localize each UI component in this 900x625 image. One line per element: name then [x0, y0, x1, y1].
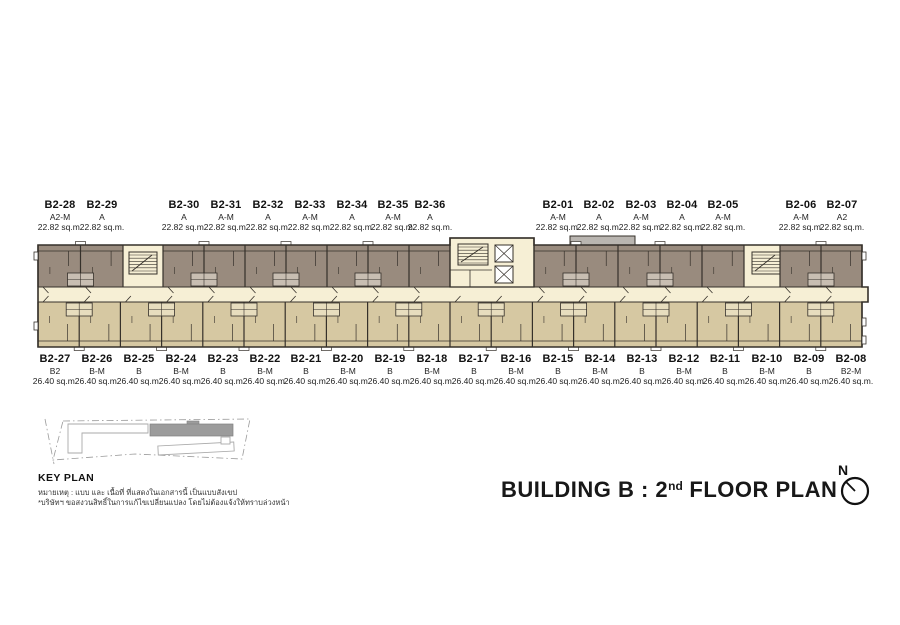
compass-needle: [846, 482, 855, 491]
unit-label-b2-14: B2-14B-M26.40 sq.m.: [578, 353, 622, 387]
unit-id: B2-22: [243, 353, 287, 366]
unit-type: B: [787, 367, 831, 377]
unit-id: B2-21: [284, 353, 328, 366]
north-compass: N: [830, 458, 880, 513]
unit-area: 26.40 sq.m.: [578, 377, 622, 387]
unit-id: B2-17: [452, 353, 496, 366]
unit-type: B: [452, 367, 496, 377]
unit-id: B2-14: [578, 353, 622, 366]
unit-type: B-M: [494, 367, 538, 377]
unit-area: 26.40 sq.m.: [326, 377, 370, 387]
unit-area: 26.40 sq.m.: [536, 377, 580, 387]
unit-type: B2-M: [829, 367, 873, 377]
unit-label-b2-22: B2-22B-M26.40 sq.m.: [243, 353, 287, 387]
unit-area: 26.40 sq.m.: [410, 377, 454, 387]
unit-id: B2-26: [75, 353, 119, 366]
unit-label-b2-25: B2-25B26.40 sq.m.: [117, 353, 161, 387]
unit-label-b2-17: B2-17B26.40 sq.m.: [452, 353, 496, 387]
key-plan-map: [38, 416, 273, 471]
unit-area: 26.40 sq.m.: [159, 377, 203, 387]
page-title: BUILDING B : 2nd FLOOR PLAN: [501, 477, 837, 503]
unit-area: 26.40 sq.m.: [787, 377, 831, 387]
unit-label-b2-18: B2-18B-M26.40 sq.m.: [410, 353, 454, 387]
unit-area: 26.40 sq.m.: [703, 377, 747, 387]
unit-type: B: [117, 367, 161, 377]
unit-area: 26.40 sq.m.: [494, 377, 538, 387]
unit-label-b2-16: B2-16B-M26.40 sq.m.: [494, 353, 538, 387]
unit-id: B2-24: [159, 353, 203, 366]
unit-id: B2-13: [620, 353, 664, 366]
unit-area: 26.40 sq.m.: [452, 377, 496, 387]
keyplan-note-2: *บริษัทฯ ขอสงวนสิทธิ์ในการแก้ไขเปลี่ยนแป…: [38, 497, 290, 509]
unit-type: B: [284, 367, 328, 377]
unit-label-b2-26: B2-26B-M26.40 sq.m.: [75, 353, 119, 387]
unit-label-b2-15: B2-15B26.40 sq.m.: [536, 353, 580, 387]
unit-type: B: [201, 367, 245, 377]
unit-type: B: [536, 367, 580, 377]
unit-area: 26.40 sq.m.: [33, 377, 77, 387]
unit-type: B-M: [75, 367, 119, 377]
unit-type: B-M: [662, 367, 706, 377]
keyplan-title: KEY PLAN: [38, 472, 94, 484]
unit-id: B2-23: [201, 353, 245, 366]
unit-area: 26.40 sq.m.: [75, 377, 119, 387]
unit-area: 26.40 sq.m.: [243, 377, 287, 387]
unit-type: B: [620, 367, 664, 377]
unit-label-b2-27: B2-27B226.40 sq.m.: [33, 353, 77, 387]
unit-id: B2-25: [117, 353, 161, 366]
unit-type: B-M: [578, 367, 622, 377]
unit-area: 26.40 sq.m.: [745, 377, 789, 387]
unit-label-b2-09: B2-09B26.40 sq.m.: [787, 353, 831, 387]
north-label: N: [838, 462, 848, 478]
unit-label-b2-08: B2-08B2-M26.40 sq.m.: [829, 353, 873, 387]
unit-type: B-M: [243, 367, 287, 377]
unit-id: B2-11: [703, 353, 747, 366]
unit-label-b2-13: B2-13B26.40 sq.m.: [620, 353, 664, 387]
unit-label-b2-19: B2-19B26.40 sq.m.: [368, 353, 412, 387]
unit-id: B2-15: [536, 353, 580, 366]
unit-id: B2-18: [410, 353, 454, 366]
unit-area: 26.40 sq.m.: [284, 377, 328, 387]
unit-area: 26.40 sq.m.: [201, 377, 245, 387]
unit-id: B2-16: [494, 353, 538, 366]
keyplan-building-b-highlight: [150, 424, 233, 436]
unit-type: B-M: [159, 367, 203, 377]
unit-id: B2-19: [368, 353, 412, 366]
unit-id: B2-08: [829, 353, 873, 366]
unit-label-b2-20: B2-20B-M26.40 sq.m.: [326, 353, 370, 387]
unit-type: B: [703, 367, 747, 377]
unit-label-b2-21: B2-21B26.40 sq.m.: [284, 353, 328, 387]
unit-id: B2-10: [745, 353, 789, 366]
unit-label-b2-24: B2-24B-M26.40 sq.m.: [159, 353, 203, 387]
unit-type: B-M: [410, 367, 454, 377]
unit-area: 26.40 sq.m.: [368, 377, 412, 387]
unit-id: B2-20: [326, 353, 370, 366]
unit-label-b2-12: B2-12B-M26.40 sq.m.: [662, 353, 706, 387]
unit-label-b2-10: B2-10B-M26.40 sq.m.: [745, 353, 789, 387]
unit-type: B-M: [326, 367, 370, 377]
floor-plan-page: B2-28A2-M22.82 sq.m.B2-29A22.82 sq.m.B2-…: [0, 0, 900, 625]
unit-label-b2-11: B2-11B26.40 sq.m.: [703, 353, 747, 387]
unit-id: B2-09: [787, 353, 831, 366]
unit-type: B: [368, 367, 412, 377]
building-floor-plan: [0, 0, 900, 625]
unit-area: 26.40 sq.m.: [662, 377, 706, 387]
unit-id: B2-12: [662, 353, 706, 366]
unit-area: 26.40 sq.m.: [829, 377, 873, 387]
unit-label-b2-23: B2-23B26.40 sq.m.: [201, 353, 245, 387]
title-superscript: nd: [668, 479, 683, 493]
unit-type: B2: [33, 367, 77, 377]
unit-id: B2-27: [33, 353, 77, 366]
unit-type: B-M: [745, 367, 789, 377]
unit-area: 26.40 sq.m.: [117, 377, 161, 387]
unit-area: 26.40 sq.m.: [620, 377, 664, 387]
